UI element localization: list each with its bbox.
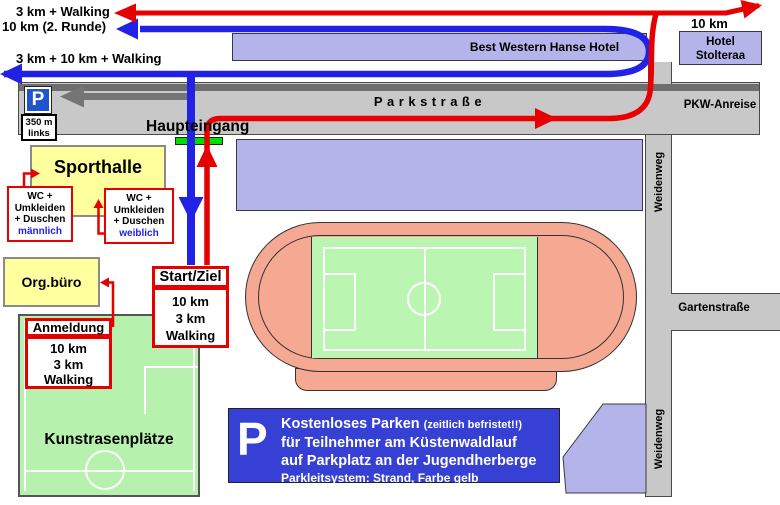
start-finish-title: Start/Ziel xyxy=(159,269,221,285)
pitch-center-circle xyxy=(407,282,441,316)
registration-title-box: Anmeldung xyxy=(25,318,112,337)
pitch-penalty-box-right xyxy=(493,273,526,331)
info-headline: Kostenloses Parken xyxy=(281,416,420,432)
start-finish-item: 3 km xyxy=(155,310,226,327)
start-finish-item: Walking xyxy=(155,327,226,344)
info-line4: Parkleitsystem: Strand, Farbe gelb xyxy=(281,470,536,486)
wc-male-line2: Umkleiden xyxy=(9,203,71,215)
registration-items-box: 10 km 3 km Walking xyxy=(25,336,112,389)
org-office-building: Org.büro xyxy=(3,257,100,307)
wc-male-box: WC + Umkleiden + Duschen männlich xyxy=(7,186,73,242)
info-line2: für Teilnehmer am Küstenwaldlauf xyxy=(281,434,536,452)
road-parkstrasse-median xyxy=(19,84,759,91)
main-entrance-label: Haupteingang xyxy=(146,118,249,136)
registration-title: Anmeldung xyxy=(33,320,105,335)
road-label-gartenstrasse: Gartenstraße xyxy=(664,302,764,314)
parking-sign-p: P xyxy=(32,89,45,110)
sporthalle-label: Sporthalle xyxy=(32,157,164,178)
turf-upper-divider xyxy=(144,366,146,414)
wc-female-box: WC + Umkleiden + Duschen weiblich xyxy=(104,188,174,244)
event-site-map: Best Western Hanse Hotel Hotel Stolteraa… xyxy=(0,0,780,505)
route-red-top-line xyxy=(136,6,759,14)
road-label-pkw-anreise: PKW-Anreise xyxy=(677,99,763,111)
route-blue-finish-arrow-head xyxy=(179,197,204,222)
parking-sign-icon: P xyxy=(24,86,52,114)
registration-item: 3 km xyxy=(28,357,109,373)
start-finish-items-box: 10 km 3 km Walking xyxy=(152,287,229,348)
registration-to-office-arrow-head xyxy=(100,278,109,288)
free-parking-info-box: P Kostenloses Parken (zeitlich befristet… xyxy=(228,408,560,483)
main-entrance-marker xyxy=(175,137,223,145)
best-western-hotel-building: Best Western Hanse Hotel xyxy=(232,33,647,61)
route-label-blue-outbound: 3 km + 10 km + Walking xyxy=(16,51,161,66)
route-label-red-10km: 10 km xyxy=(691,16,728,31)
jugendherberge-building xyxy=(563,404,646,493)
turf-upper-line xyxy=(144,366,198,368)
parking-icon: P xyxy=(237,412,268,466)
route-red-10km-arrow-head xyxy=(741,0,763,19)
route-label-blue-second-lap: 10 km (2. Runde) xyxy=(2,19,106,34)
pitch-penalty-box-left xyxy=(323,273,356,331)
parking-distance-direction: links xyxy=(23,128,55,139)
wc-female-line3: + Duschen xyxy=(106,216,172,228)
hotel-stolteraa-label-line1: Hotel xyxy=(680,35,761,49)
road-label-weidenweg-south: Weidenweg xyxy=(653,359,665,505)
best-western-hotel-label: Best Western Hanse Hotel xyxy=(470,40,619,54)
turf-center-circle xyxy=(85,450,125,490)
road-weidenweg-north-stub xyxy=(648,62,672,84)
start-finish-item: 10 km xyxy=(155,293,226,310)
start-finish-title-box: Start/Ziel xyxy=(152,266,229,288)
wc-male-line1: WC + xyxy=(9,191,71,203)
info-line3: auf Parkplatz an der Jugendherberge xyxy=(281,452,536,470)
parking-distance-value: 350 m xyxy=(23,117,55,128)
route-red-entrance-arrow-head xyxy=(197,145,218,167)
wc-female-line2: Umkleiden xyxy=(106,205,172,217)
road-label-weidenweg-north: Weidenweg xyxy=(653,102,665,262)
large-building xyxy=(236,139,643,211)
org-office-label: Org.büro xyxy=(5,274,98,290)
route-red-return-arrow-head xyxy=(114,4,136,23)
wc-male-gender: männlich xyxy=(9,226,71,238)
hotel-stolteraa-label-line2: Stolteraa xyxy=(680,49,761,63)
route-blue-second-lap-arrow-head xyxy=(116,19,138,40)
wc-female-gender: weiblich xyxy=(106,228,172,240)
artificial-turf-label: Kunstrasenplätze xyxy=(20,431,198,449)
info-box-p: P xyxy=(237,413,268,465)
registration-item: Walking xyxy=(28,372,109,388)
parking-distance-sign: 350 m links xyxy=(21,114,57,141)
wc-female-line1: WC + xyxy=(106,193,172,205)
route-label-red-return: 3 km + Walking xyxy=(16,4,110,19)
info-headline-note: (zeitlich befristet!!) xyxy=(424,419,522,431)
registration-item: 10 km xyxy=(28,341,109,357)
road-label-parkstrasse: Parkstraße xyxy=(280,94,580,109)
wc-male-line3: + Duschen xyxy=(9,214,71,226)
hotel-stolteraa-building: Hotel Stolteraa xyxy=(679,31,762,65)
